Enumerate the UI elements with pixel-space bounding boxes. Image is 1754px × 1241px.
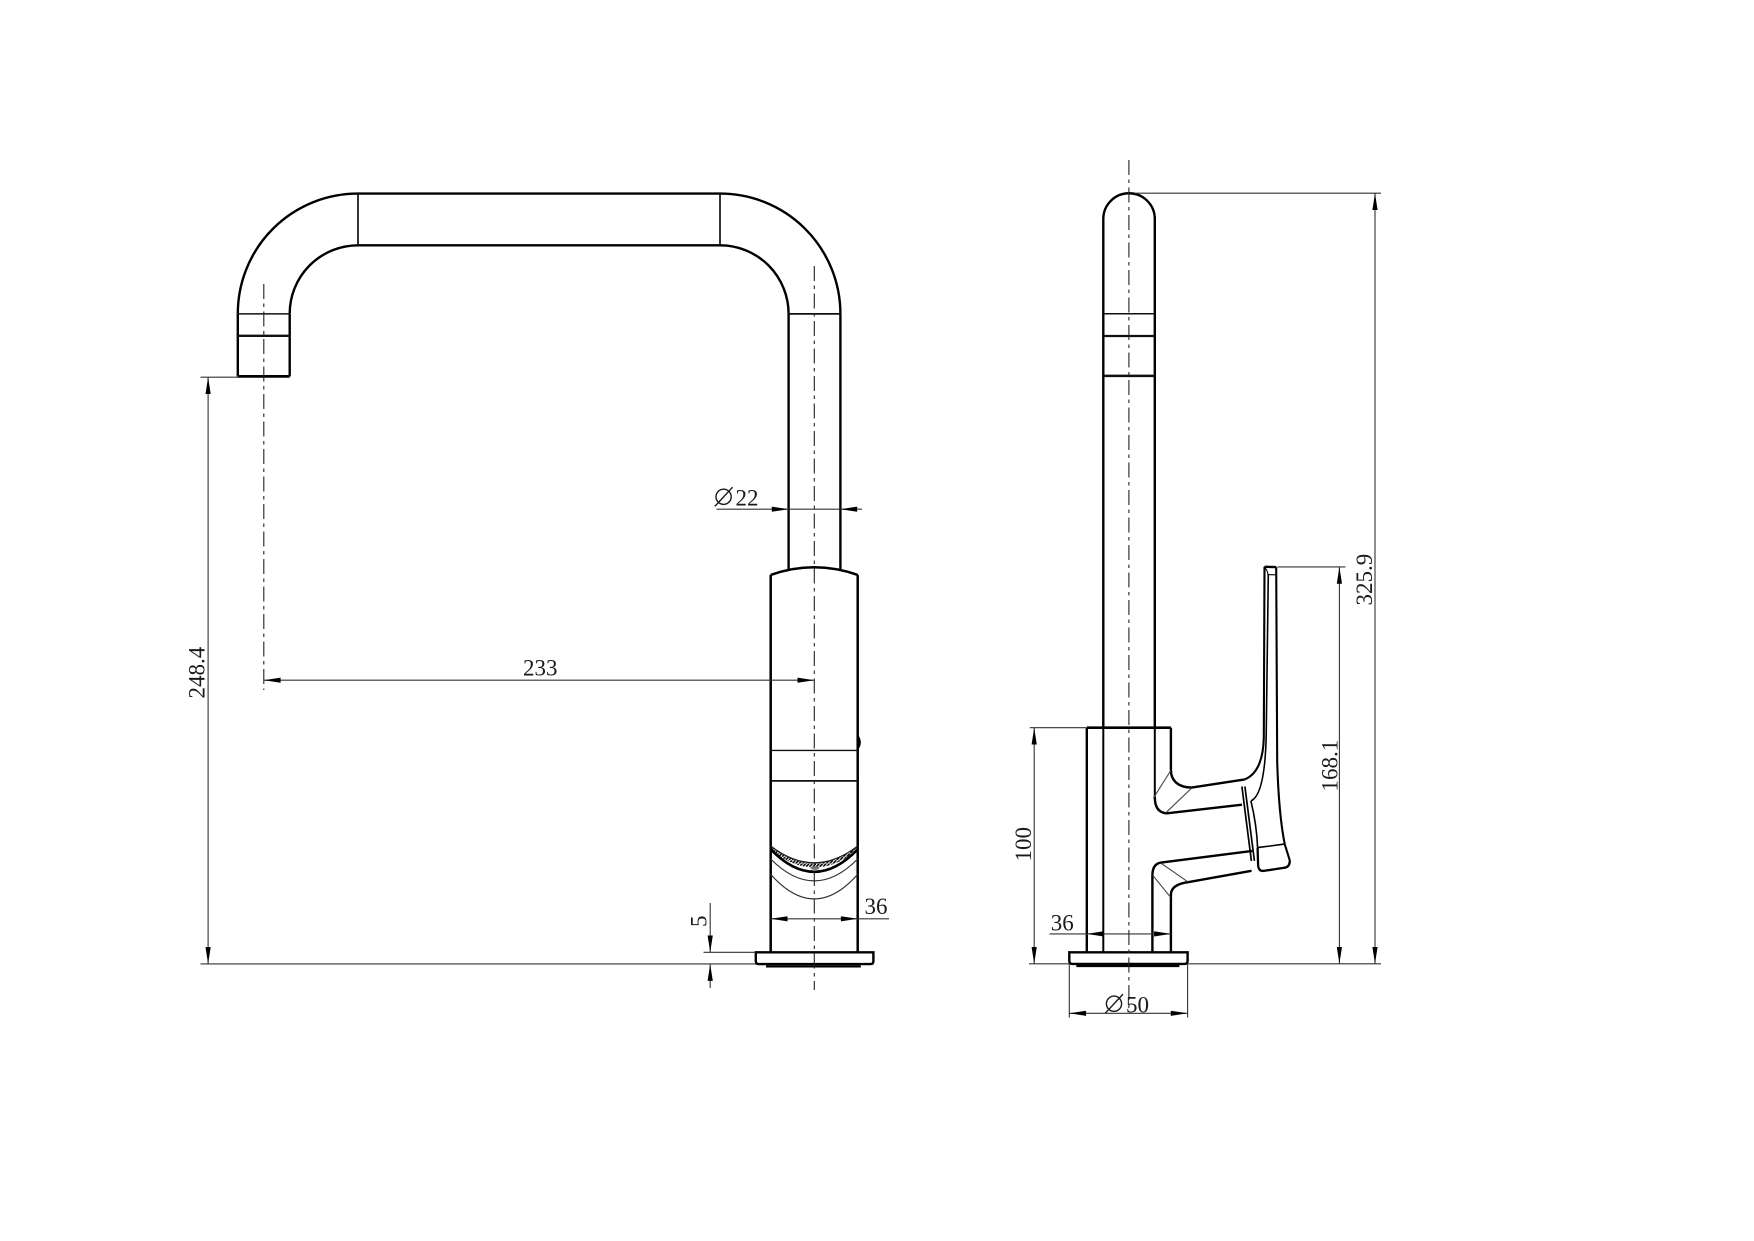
svg-text:325.9: 325.9 [1352,554,1377,606]
svg-text:22: 22 [736,486,759,511]
svg-text:36: 36 [865,894,888,919]
svg-text:248.4: 248.4 [185,646,210,698]
svg-text:50: 50 [1126,992,1149,1017]
svg-text:36: 36 [1051,911,1074,936]
svg-text:100: 100 [1011,827,1036,862]
svg-text:5: 5 [687,916,712,928]
svg-text:168.1: 168.1 [1318,740,1343,792]
svg-text:233: 233 [523,656,558,681]
